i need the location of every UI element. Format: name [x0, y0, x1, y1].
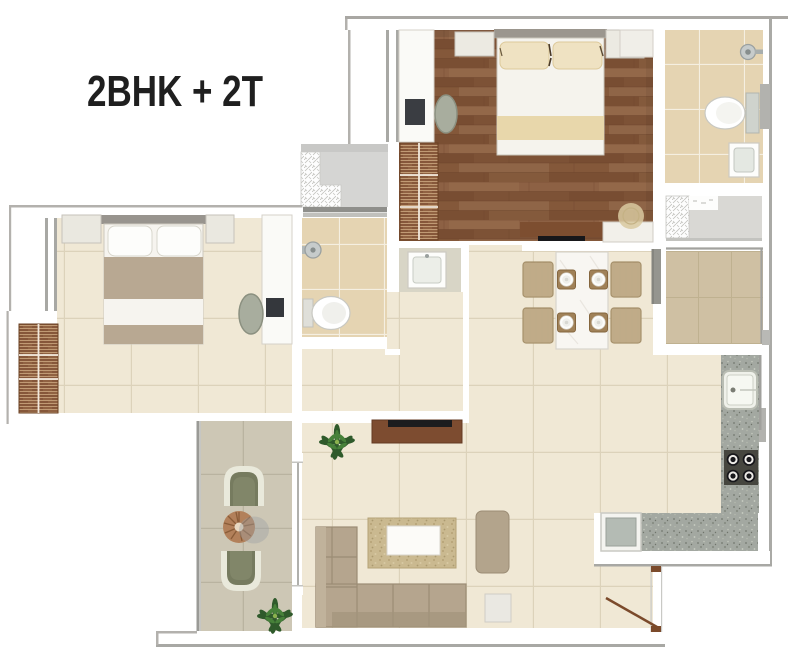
- svg-text:2BHK + 2T: 2BHK + 2T: [87, 67, 263, 116]
